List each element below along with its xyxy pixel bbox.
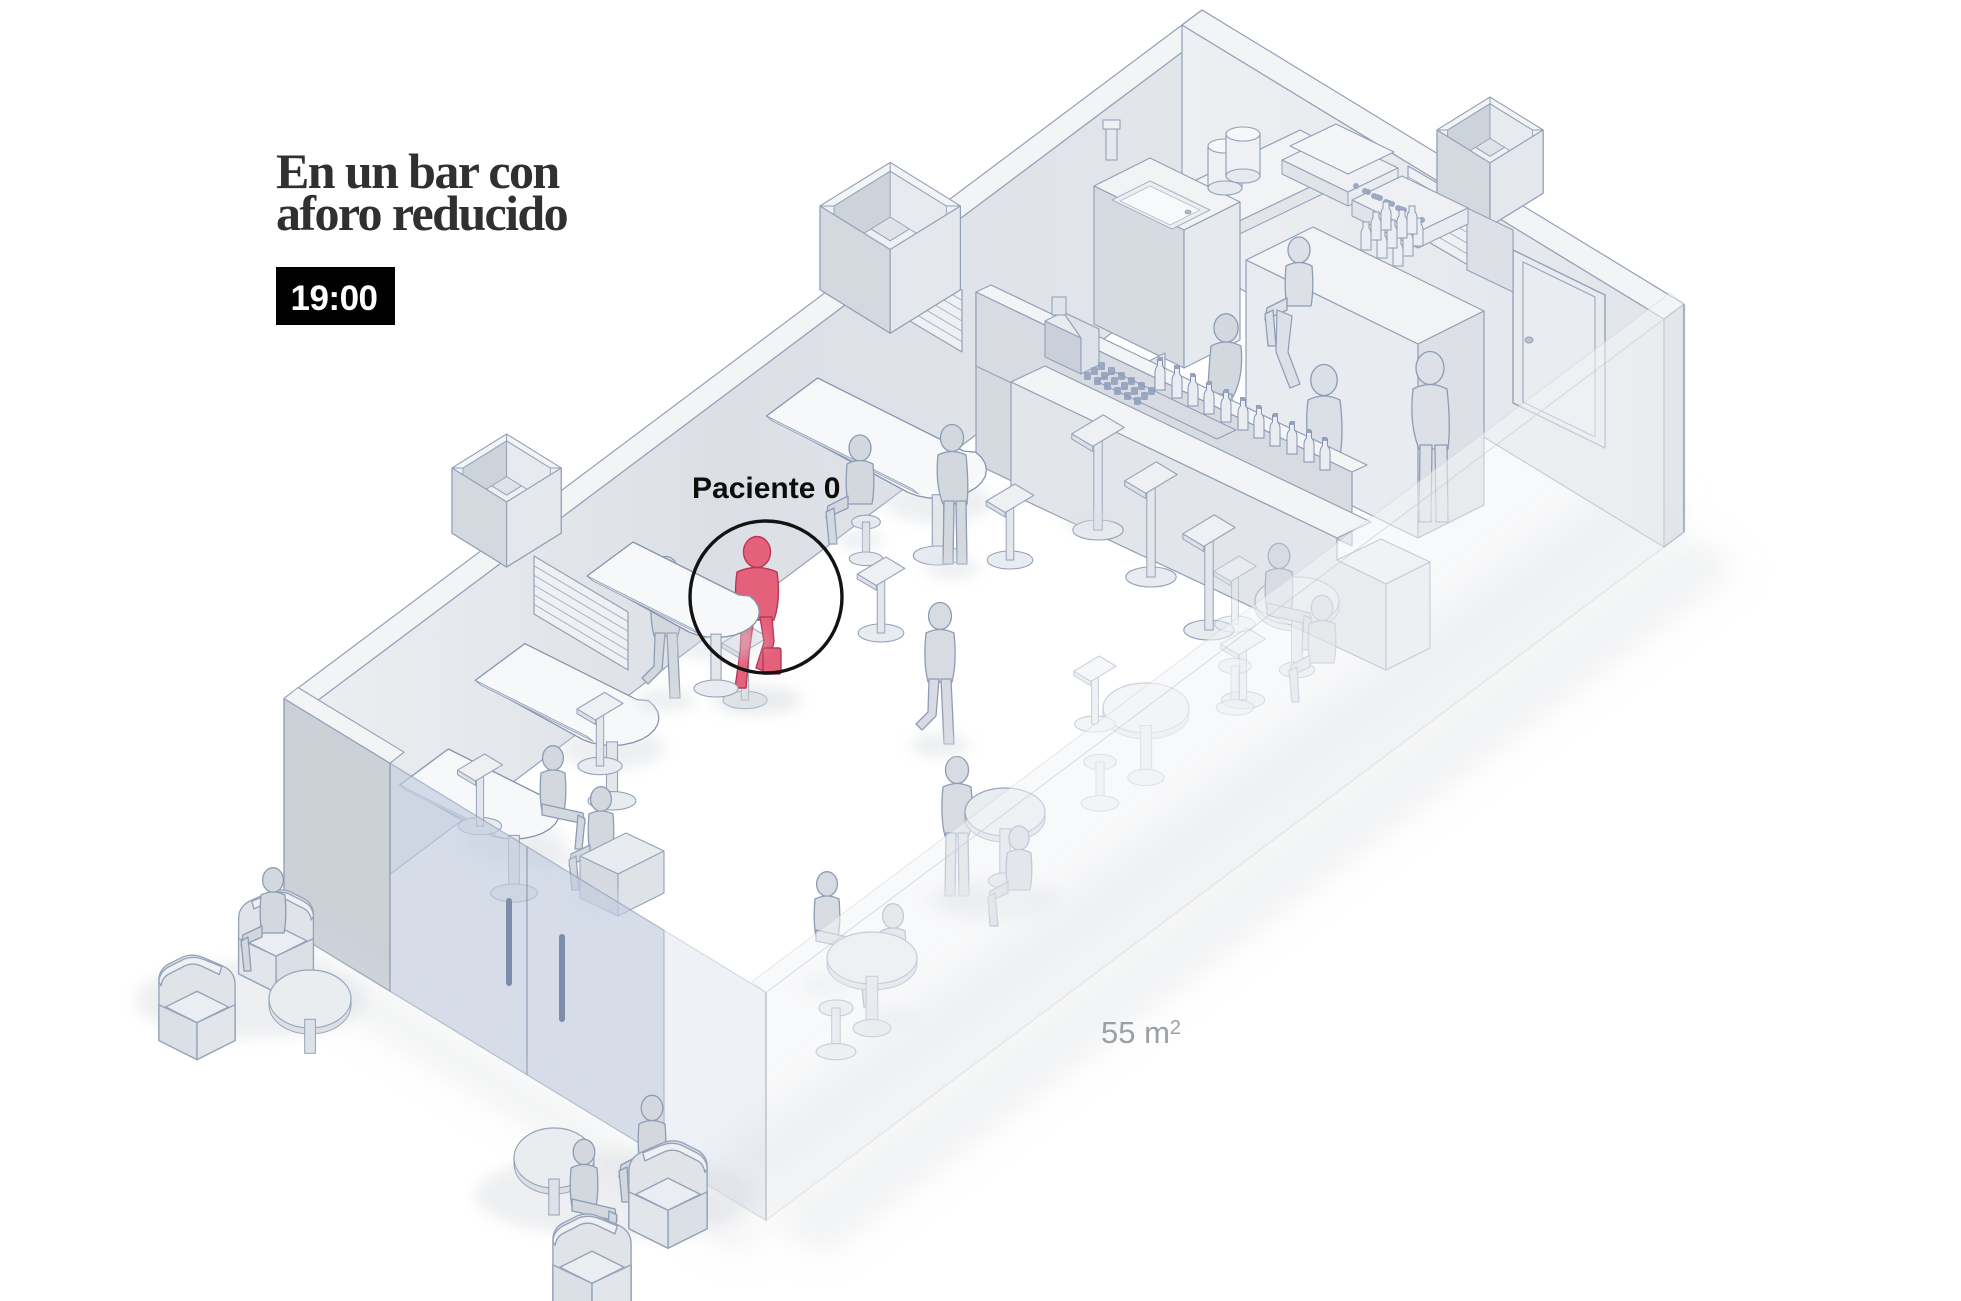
svg-text:Paciente 0: Paciente 0 <box>692 472 840 505</box>
svg-text:aforo reducido: aforo reducido <box>276 185 568 241</box>
svg-text:55 m2: 55 m2 <box>1101 1015 1181 1050</box>
svg-text:19:00: 19:00 <box>290 279 377 318</box>
